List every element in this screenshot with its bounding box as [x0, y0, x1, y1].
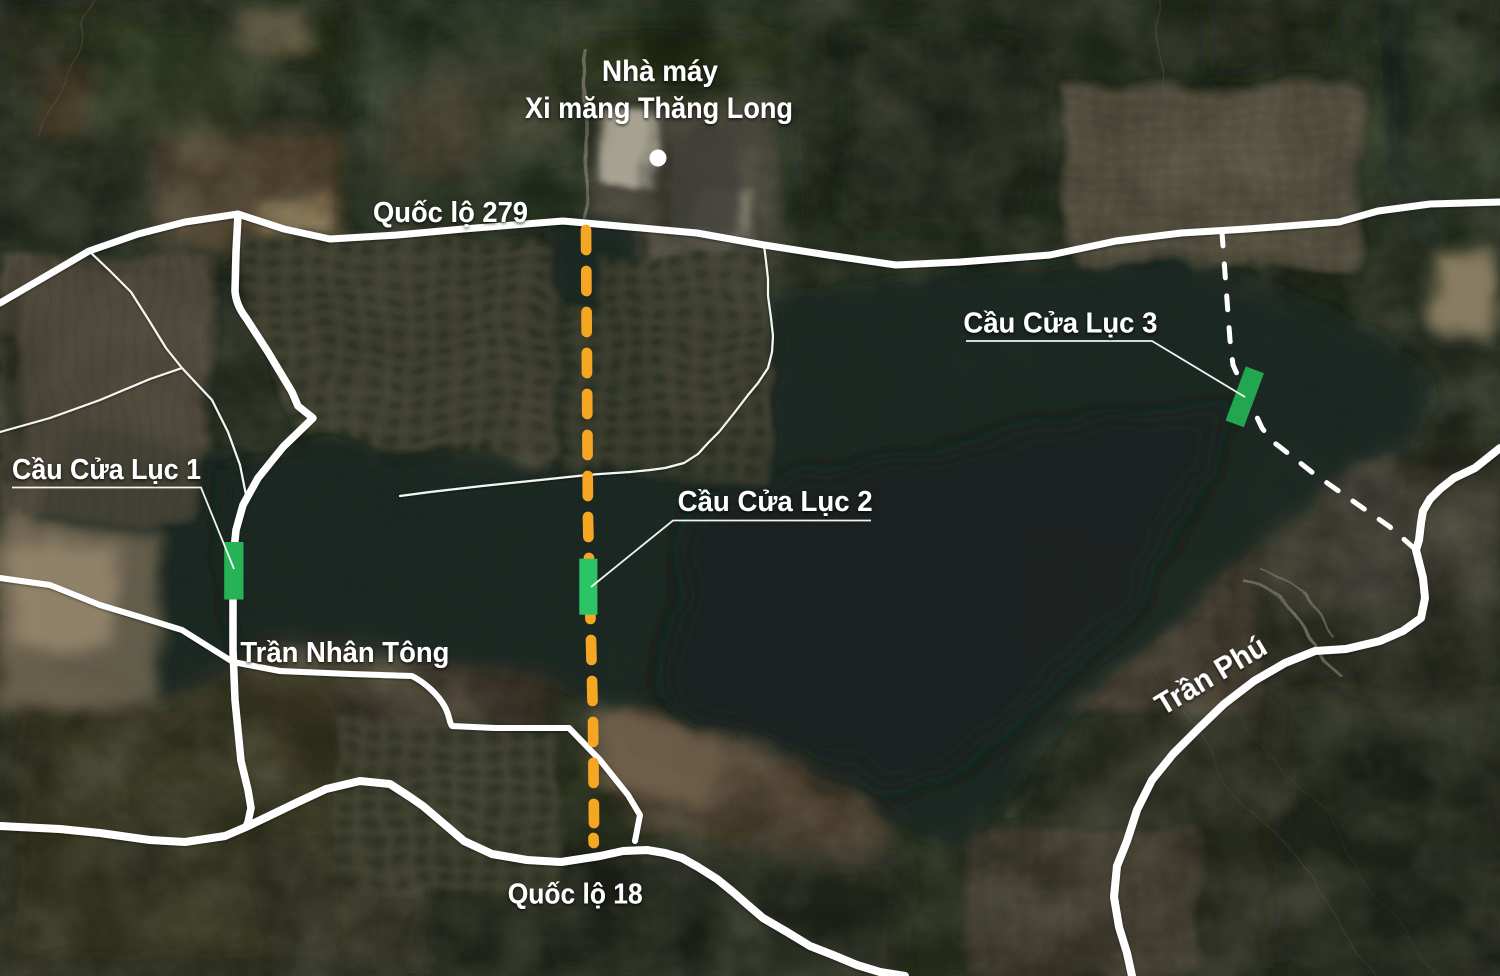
- svg-text:Quốc lộ 279: Quốc lộ 279: [373, 197, 528, 229]
- svg-text:Xi măng Thăng Long: Xi măng Thăng Long: [525, 92, 793, 125]
- svg-text:Cầu Cửa Lục 2: Cầu Cửa Lục 2: [678, 486, 873, 518]
- svg-text:Quốc lộ 18: Quốc lộ 18: [508, 879, 643, 911]
- svg-text:Trần Nhân Tông: Trần Nhân Tông: [240, 637, 449, 669]
- svg-text:Nhà máy: Nhà máy: [602, 55, 718, 88]
- svg-text:Cầu Cửa Lục 1: Cầu Cửa Lục 1: [12, 454, 201, 486]
- svg-text:Cầu Cửa Lục 3: Cầu Cửa Lục 3: [963, 308, 1157, 340]
